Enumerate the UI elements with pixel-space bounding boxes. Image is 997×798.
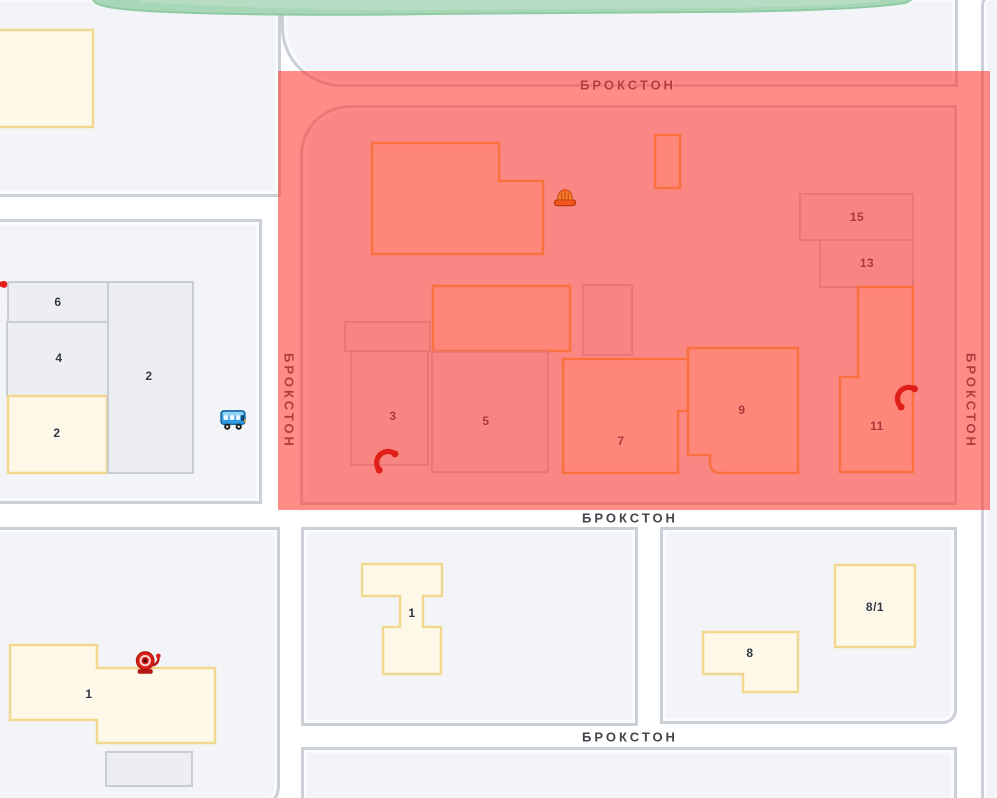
alarm-marker[interactable] — [133, 648, 163, 683]
building-label-6: 6 — [54, 295, 61, 309]
map-canvas[interactable]: БРОКСТОН БРОКСТОН БРОКСТОН БРОКСТОН БРОК… — [0, 0, 997, 798]
building-label-8-1: 8/1 — [866, 600, 884, 614]
phone-icon — [370, 445, 402, 477]
building-label-2-gray: 2 — [145, 369, 152, 383]
building-label-8: 8 — [746, 646, 753, 660]
alarm-bell-icon — [133, 648, 163, 678]
bus-icon — [220, 408, 247, 431]
bus-stop-marker[interactable] — [220, 408, 247, 436]
building-label-4: 4 — [55, 351, 62, 365]
street-label-bottom: БРОКСТОН — [582, 730, 678, 745]
phone-marker-zone-southwest[interactable] — [370, 445, 403, 482]
building-south-annex[interactable] — [106, 752, 192, 786]
hard-hat-icon — [552, 185, 579, 211]
construction-marker[interactable] — [552, 185, 579, 216]
building-south-1-middle[interactable] — [362, 564, 442, 674]
alert-zone-overlay — [278, 71, 990, 510]
building-south-8[interactable] — [703, 632, 798, 692]
street-label-middle: БРОКСТОН — [582, 511, 678, 526]
building-northwest-7[interactable] — [0, 30, 93, 127]
building-label-1-middle: 1 — [408, 606, 415, 620]
building-label-2-yellow: 2 — [53, 426, 60, 440]
building-label-1-left: 1 — [85, 687, 92, 701]
building-south-1-left[interactable] — [10, 645, 215, 743]
